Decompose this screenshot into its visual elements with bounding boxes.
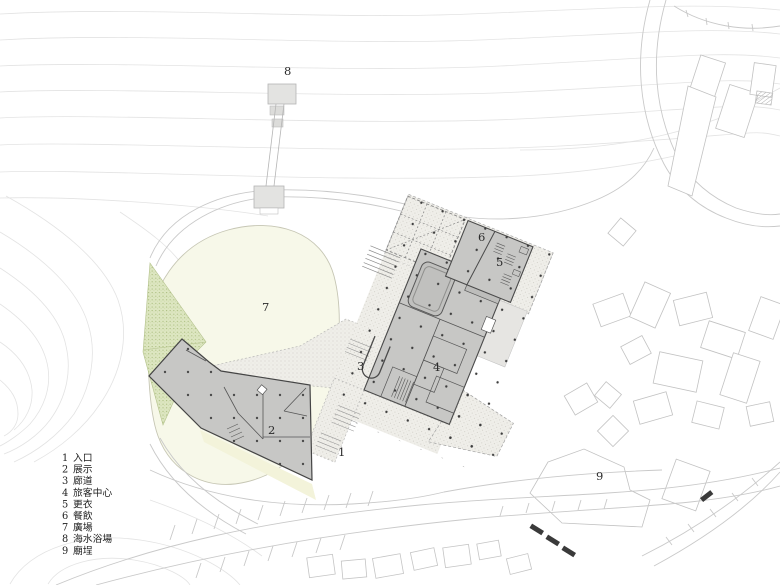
legend-row-7: 7廣場 — [62, 521, 93, 534]
plan-label-6: 6 — [478, 230, 485, 244]
plan-label-2: 2 — [268, 423, 275, 437]
plan-label-7: 7 — [262, 300, 269, 314]
site-plan-page: 1 2 3 4 5 6 7 8 9 1入口 2展示 3廊道 4旅客中心 5更衣 … — [0, 0, 780, 585]
plan-label-3: 3 — [357, 359, 364, 373]
legend-row-2: 2展示 — [62, 464, 93, 476]
site-plan-drawing: 1 2 3 4 5 6 7 8 9 1入口 2展示 3廊道 4旅客中心 5更衣 … — [0, 0, 780, 585]
plan-label-9: 9 — [596, 469, 603, 483]
legend-row-3: 3廊道 — [62, 474, 93, 487]
plan-label-4: 4 — [433, 360, 440, 374]
plan-label-1: 1 — [338, 445, 345, 459]
plan-label-8: 8 — [284, 64, 291, 78]
legend-row-6: 6餐飲 — [62, 509, 93, 522]
legend-row-9: 9廟埕 — [62, 544, 93, 557]
plan-label-5: 5 — [496, 255, 503, 269]
legend-row-1: 1入口 — [62, 453, 93, 464]
legend-row-5: 5更衣 — [62, 497, 93, 510]
